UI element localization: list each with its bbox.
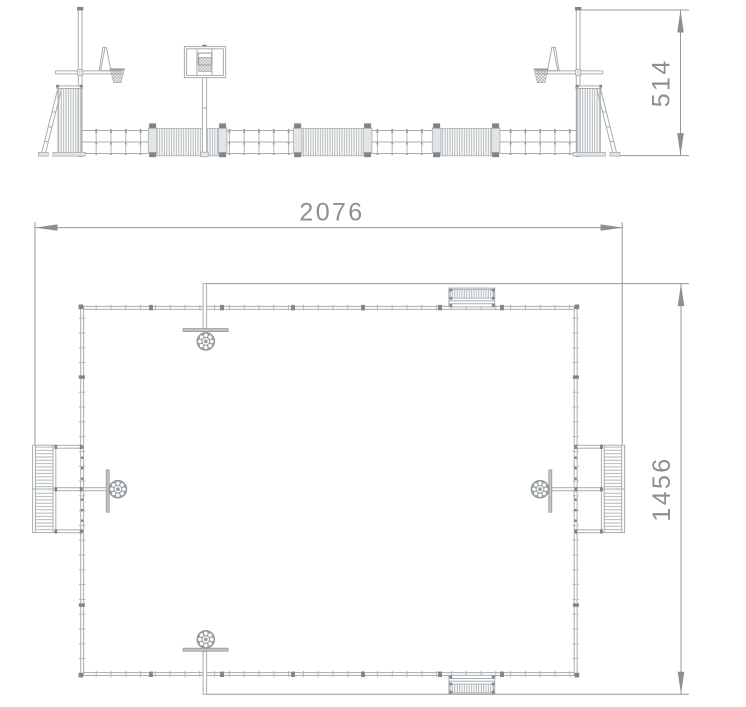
- dim-plan-width-value: 2076: [299, 199, 364, 227]
- technical-drawing-canvas: 514: [0, 0, 746, 707]
- plan-basketball-unit-top: [183, 284, 228, 351]
- plan-ladder-right: [573, 445, 624, 534]
- plan-court-fence: [79, 305, 580, 678]
- dimension-plan-width: 2076: [35, 199, 623, 445]
- basketball-hoop-icon: [531, 480, 549, 498]
- basketball-hoop-icon: [197, 333, 215, 351]
- basketball-hoop-icon: [197, 631, 215, 649]
- dim-plan-depth-value: 1456: [648, 456, 676, 521]
- fence-corner-posts: [79, 305, 580, 678]
- plan-basketball-unit-left: [84, 470, 127, 512]
- elevation-view: 514: [38, 7, 689, 157]
- plan-basketball-unit-bottom: [183, 631, 228, 695]
- plan-bench-bottom: [449, 675, 495, 694]
- basketball-hoop-icon: [109, 480, 127, 498]
- plan-view: 2076 1456: [33, 199, 689, 695]
- fence-line-posts: [79, 305, 579, 677]
- plan-ladder-left: [33, 445, 84, 534]
- dim-elevation-height-value: 514: [648, 58, 676, 107]
- plan-bench-top: [449, 288, 495, 307]
- court-drawing: 514: [0, 0, 746, 707]
- elevation-fence: [82, 123, 576, 157]
- plan-basketball-unit-right: [531, 470, 574, 512]
